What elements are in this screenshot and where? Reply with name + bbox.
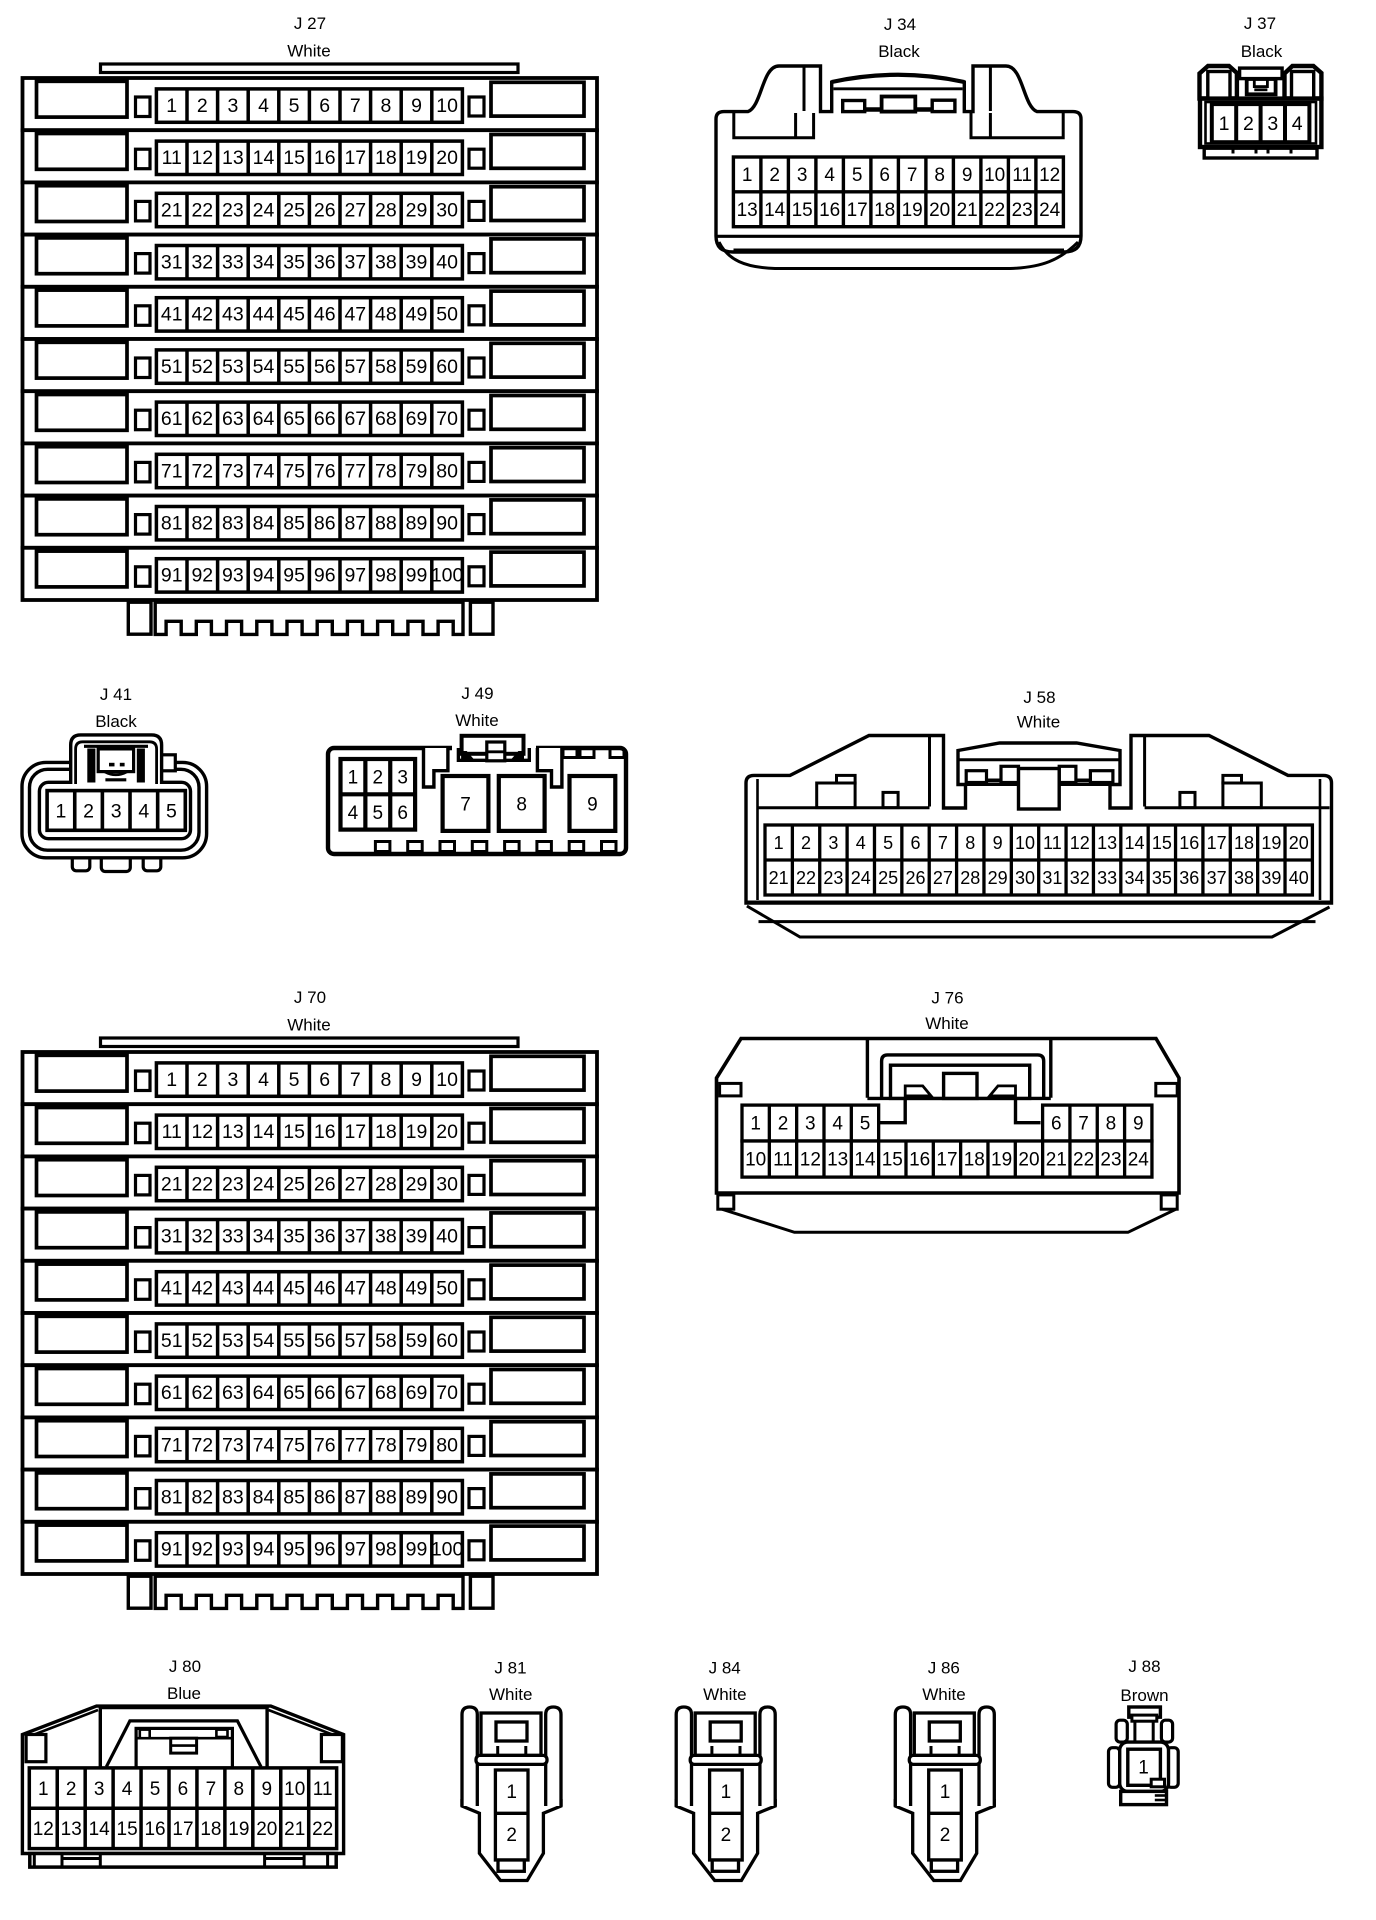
svg-text:67: 67 (344, 408, 366, 430)
svg-text:19: 19 (228, 1819, 249, 1840)
svg-text:15: 15 (283, 147, 305, 169)
svg-text:82: 82 (191, 513, 213, 535)
svg-text:21: 21 (769, 868, 789, 888)
svg-text:22: 22 (1073, 1150, 1094, 1171)
svg-text:27: 27 (344, 1173, 366, 1195)
svg-text:33: 33 (1097, 868, 1117, 888)
svg-text:12: 12 (191, 147, 213, 169)
svg-text:58: 58 (375, 1330, 397, 1352)
svg-text:23: 23 (823, 868, 843, 888)
svg-text:92: 92 (191, 565, 213, 587)
svg-text:26: 26 (314, 1173, 336, 1195)
svg-text:59: 59 (406, 356, 428, 378)
svg-text:71: 71 (161, 460, 183, 482)
svg-text:29: 29 (988, 868, 1008, 888)
svg-text:80: 80 (436, 460, 458, 482)
svg-text:16: 16 (1179, 833, 1199, 853)
svg-text:2: 2 (197, 95, 208, 117)
svg-text:26: 26 (314, 199, 336, 221)
svg-text:6: 6 (319, 1069, 330, 1091)
svg-text:14: 14 (854, 1150, 876, 1171)
svg-text:72: 72 (191, 460, 213, 482)
svg-text:23: 23 (222, 1173, 244, 1195)
svg-text:16: 16 (314, 147, 336, 169)
svg-text:8: 8 (234, 1779, 245, 1800)
svg-text:5: 5 (852, 165, 863, 186)
svg-text:17: 17 (344, 1121, 366, 1143)
svg-text:1: 1 (742, 165, 753, 186)
svg-text:10: 10 (436, 95, 458, 117)
svg-text:20: 20 (256, 1819, 277, 1840)
svg-text:1: 1 (1219, 113, 1230, 135)
svg-text:78: 78 (375, 460, 397, 482)
svg-text:50: 50 (436, 304, 458, 326)
svg-text:85: 85 (283, 513, 305, 535)
svg-text:73: 73 (222, 460, 244, 482)
svg-text:3: 3 (1267, 113, 1278, 135)
svg-text:22: 22 (796, 868, 816, 888)
svg-text:23: 23 (1100, 1150, 1121, 1171)
svg-text:63: 63 (222, 1382, 244, 1404)
svg-text:3: 3 (94, 1779, 105, 1800)
svg-text:15: 15 (882, 1150, 903, 1171)
svg-text:5: 5 (883, 833, 893, 853)
svg-text:Black: Black (1241, 42, 1283, 61)
svg-text:2: 2 (66, 1779, 77, 1800)
svg-text:49: 49 (406, 304, 428, 326)
svg-text:6: 6 (879, 165, 890, 186)
svg-text:3: 3 (227, 95, 238, 117)
svg-text:11: 11 (773, 1150, 793, 1171)
svg-text:24: 24 (1039, 200, 1061, 221)
svg-text:45: 45 (283, 304, 305, 326)
svg-text:2: 2 (373, 767, 384, 788)
svg-text:30: 30 (436, 1173, 458, 1195)
svg-text:4: 4 (348, 803, 359, 824)
svg-text:50: 50 (436, 1278, 458, 1300)
svg-text:35: 35 (283, 1226, 305, 1248)
svg-text:48: 48 (375, 1278, 397, 1300)
svg-text:99: 99 (406, 565, 428, 587)
svg-text:2: 2 (197, 1069, 208, 1091)
svg-text:14: 14 (764, 200, 786, 221)
svg-text:1: 1 (1138, 1758, 1149, 1779)
svg-text:43: 43 (222, 304, 244, 326)
svg-text:3: 3 (111, 800, 122, 822)
svg-text:8: 8 (380, 1069, 391, 1091)
svg-text:56: 56 (314, 356, 336, 378)
svg-text:20: 20 (1018, 1150, 1039, 1171)
svg-text:57: 57 (344, 356, 366, 378)
svg-text:79: 79 (406, 1434, 428, 1456)
svg-text:21: 21 (161, 199, 183, 221)
svg-text:19: 19 (1261, 833, 1281, 853)
svg-text:9: 9 (587, 795, 598, 816)
svg-text:7: 7 (1078, 1114, 1089, 1135)
svg-text:5: 5 (289, 1069, 300, 1091)
svg-text:83: 83 (222, 513, 244, 535)
svg-text:15: 15 (1152, 833, 1172, 853)
svg-text:41: 41 (161, 304, 183, 326)
svg-text:97: 97 (344, 1539, 366, 1561)
svg-text:92: 92 (191, 1539, 213, 1561)
svg-text:69: 69 (406, 1382, 428, 1404)
svg-text:20: 20 (1289, 833, 1309, 853)
svg-text:13: 13 (827, 1150, 848, 1171)
svg-text:68: 68 (375, 408, 397, 430)
svg-text:8: 8 (516, 795, 527, 816)
svg-text:72: 72 (191, 1434, 213, 1456)
svg-text:13: 13 (222, 1121, 244, 1143)
svg-text:Blue: Blue (167, 1684, 201, 1703)
svg-text:31: 31 (161, 252, 183, 274)
svg-text:12: 12 (33, 1819, 54, 1840)
svg-text:1: 1 (774, 833, 784, 853)
svg-text:12: 12 (1070, 833, 1090, 853)
svg-text:18: 18 (874, 200, 895, 221)
svg-text:80: 80 (436, 1434, 458, 1456)
svg-text:85: 85 (283, 1487, 305, 1509)
svg-text:94: 94 (253, 565, 275, 587)
svg-text:17: 17 (847, 200, 868, 221)
svg-text:4: 4 (258, 95, 269, 117)
svg-text:6: 6 (397, 803, 408, 824)
svg-text:24: 24 (253, 199, 275, 221)
svg-text:97: 97 (344, 565, 366, 587)
svg-text:96: 96 (314, 1539, 336, 1561)
svg-text:79: 79 (406, 460, 428, 482)
svg-text:J 41: J 41 (100, 685, 132, 704)
svg-text:12: 12 (800, 1150, 821, 1171)
svg-text:2: 2 (778, 1114, 789, 1135)
svg-text:90: 90 (436, 1487, 458, 1509)
svg-text:3: 3 (805, 1114, 816, 1135)
svg-text:15: 15 (283, 1121, 305, 1143)
svg-text:2: 2 (83, 800, 94, 822)
svg-text:84: 84 (253, 1487, 275, 1509)
svg-text:95: 95 (283, 1539, 305, 1561)
svg-text:16: 16 (144, 1819, 165, 1840)
svg-text:16: 16 (819, 200, 840, 221)
svg-text:89: 89 (406, 1487, 428, 1509)
svg-text:4: 4 (832, 1114, 843, 1135)
svg-text:10: 10 (984, 165, 1005, 186)
svg-text:5: 5 (860, 1114, 871, 1135)
svg-text:J 58: J 58 (1023, 688, 1055, 707)
svg-text:13: 13 (737, 200, 758, 221)
svg-text:62: 62 (191, 408, 213, 430)
svg-text:17: 17 (172, 1819, 193, 1840)
svg-text:81: 81 (161, 1487, 183, 1509)
svg-text:34: 34 (253, 252, 275, 274)
svg-text:36: 36 (314, 1226, 336, 1248)
svg-text:100: 100 (431, 565, 464, 587)
svg-text:10: 10 (284, 1779, 305, 1800)
svg-text:52: 52 (191, 1330, 213, 1352)
svg-text:24: 24 (851, 868, 871, 888)
svg-text:20: 20 (929, 200, 950, 221)
svg-text:30: 30 (1015, 868, 1035, 888)
svg-text:8: 8 (1106, 1114, 1117, 1135)
svg-text:2: 2 (801, 833, 811, 853)
svg-text:38: 38 (375, 252, 397, 274)
svg-text:J 70: J 70 (294, 988, 326, 1007)
svg-text:32: 32 (1070, 868, 1090, 888)
svg-text:1: 1 (348, 767, 359, 788)
svg-text:25: 25 (283, 1173, 305, 1195)
svg-text:93: 93 (222, 1539, 244, 1561)
svg-text:59: 59 (406, 1330, 428, 1352)
svg-text:14: 14 (1124, 833, 1144, 853)
svg-text:75: 75 (283, 1434, 305, 1456)
svg-text:64: 64 (253, 1382, 275, 1404)
svg-text:86: 86 (314, 1487, 336, 1509)
svg-text:21: 21 (957, 200, 978, 221)
svg-text:41: 41 (161, 1278, 183, 1300)
svg-text:5: 5 (373, 803, 384, 824)
svg-text:22: 22 (191, 1173, 213, 1195)
svg-text:8: 8 (380, 95, 391, 117)
svg-text:51: 51 (161, 1330, 183, 1352)
svg-text:10: 10 (1015, 833, 1035, 853)
svg-text:1: 1 (38, 1779, 49, 1800)
svg-text:White: White (922, 1685, 965, 1704)
svg-text:71: 71 (161, 1434, 183, 1456)
svg-text:70: 70 (436, 1382, 458, 1404)
svg-text:29: 29 (406, 1173, 428, 1195)
svg-text:68: 68 (375, 1382, 397, 1404)
svg-text:9: 9 (411, 1069, 422, 1091)
svg-text:96: 96 (314, 565, 336, 587)
svg-text:2: 2 (506, 1825, 517, 1846)
svg-text:14: 14 (253, 1121, 275, 1143)
svg-text:87: 87 (344, 1487, 366, 1509)
svg-text:94: 94 (253, 1539, 275, 1561)
svg-text:14: 14 (89, 1819, 111, 1840)
svg-text:84: 84 (253, 513, 275, 535)
svg-text:1: 1 (506, 1782, 517, 1803)
svg-text:13: 13 (61, 1819, 82, 1840)
svg-text:11: 11 (1043, 833, 1062, 853)
svg-text:J 49: J 49 (461, 684, 493, 703)
svg-text:13: 13 (222, 147, 244, 169)
svg-text:10: 10 (745, 1150, 766, 1171)
svg-text:White: White (925, 1014, 968, 1033)
svg-text:27: 27 (933, 868, 953, 888)
svg-text:60: 60 (436, 356, 458, 378)
svg-text:7: 7 (938, 833, 948, 853)
svg-text:2: 2 (721, 1825, 732, 1846)
svg-text:9: 9 (962, 165, 973, 186)
svg-text:White: White (703, 1685, 746, 1704)
svg-text:Brown: Brown (1120, 1686, 1168, 1705)
svg-text:11: 11 (313, 1779, 333, 1800)
svg-text:10: 10 (436, 1069, 458, 1091)
svg-text:White: White (489, 1685, 532, 1704)
svg-text:18: 18 (964, 1150, 985, 1171)
svg-text:8: 8 (934, 165, 945, 186)
svg-text:1: 1 (166, 95, 177, 117)
svg-text:99: 99 (406, 1539, 428, 1561)
svg-text:48: 48 (375, 304, 397, 326)
svg-text:19: 19 (902, 200, 923, 221)
svg-text:24: 24 (253, 1173, 275, 1195)
svg-text:74: 74 (253, 460, 275, 482)
svg-text:17: 17 (936, 1150, 957, 1171)
svg-text:J 34: J 34 (884, 15, 916, 34)
svg-text:6: 6 (319, 95, 330, 117)
svg-text:1: 1 (166, 1069, 177, 1091)
svg-text:46: 46 (314, 1278, 336, 1300)
svg-text:67: 67 (344, 1382, 366, 1404)
svg-text:53: 53 (222, 356, 244, 378)
svg-text:61: 61 (161, 1382, 183, 1404)
svg-text:J 76: J 76 (931, 989, 963, 1008)
svg-text:11: 11 (162, 1121, 182, 1143)
svg-text:35: 35 (283, 252, 305, 274)
svg-text:40: 40 (1289, 868, 1309, 888)
svg-text:55: 55 (283, 356, 305, 378)
svg-text:66: 66 (314, 1382, 336, 1404)
svg-text:23: 23 (1012, 200, 1033, 221)
svg-text:47: 47 (344, 1278, 366, 1300)
svg-text:22: 22 (191, 199, 213, 221)
svg-text:38: 38 (1234, 868, 1254, 888)
svg-text:45: 45 (283, 1278, 305, 1300)
svg-text:25: 25 (878, 868, 898, 888)
svg-text:19: 19 (991, 1150, 1012, 1171)
svg-text:27: 27 (344, 199, 366, 221)
svg-text:21: 21 (284, 1819, 305, 1840)
svg-text:65: 65 (283, 408, 305, 430)
svg-text:69: 69 (406, 408, 428, 430)
svg-text:88: 88 (375, 513, 397, 535)
svg-text:9: 9 (411, 95, 422, 117)
svg-text:93: 93 (222, 565, 244, 587)
svg-text:63: 63 (222, 408, 244, 430)
svg-text:31: 31 (161, 1226, 183, 1248)
svg-text:88: 88 (375, 1487, 397, 1509)
svg-text:J 86: J 86 (928, 1659, 960, 1678)
svg-text:36: 36 (1179, 868, 1199, 888)
svg-text:5: 5 (289, 95, 300, 117)
svg-text:37: 37 (1207, 868, 1227, 888)
svg-text:White: White (455, 711, 498, 730)
svg-text:39: 39 (406, 252, 428, 274)
svg-text:58: 58 (375, 356, 397, 378)
svg-text:78: 78 (375, 1434, 397, 1456)
svg-text:22: 22 (984, 200, 1005, 221)
svg-text:90: 90 (436, 513, 458, 535)
svg-text:2: 2 (940, 1825, 951, 1846)
svg-text:7: 7 (206, 1779, 217, 1800)
svg-text:Black: Black (95, 712, 137, 731)
svg-text:44: 44 (253, 1278, 275, 1300)
svg-text:66: 66 (314, 408, 336, 430)
svg-text:76: 76 (314, 1434, 336, 1456)
svg-text:87: 87 (344, 513, 366, 535)
svg-text:J 84: J 84 (709, 1659, 741, 1678)
svg-text:57: 57 (344, 1330, 366, 1352)
svg-text:22: 22 (312, 1819, 333, 1840)
svg-text:32: 32 (191, 252, 213, 274)
svg-text:4: 4 (258, 1069, 269, 1091)
svg-text:White: White (287, 42, 330, 61)
svg-text:26: 26 (906, 868, 926, 888)
svg-text:8: 8 (965, 833, 975, 853)
svg-text:47: 47 (344, 304, 366, 326)
svg-text:98: 98 (375, 1539, 397, 1561)
svg-text:21: 21 (1046, 1150, 1067, 1171)
svg-text:Black: Black (878, 42, 920, 61)
svg-text:62: 62 (191, 1382, 213, 1404)
svg-text:43: 43 (222, 1278, 244, 1300)
svg-text:J 27: J 27 (294, 14, 326, 33)
svg-text:9: 9 (262, 1779, 273, 1800)
svg-text:19: 19 (406, 1121, 428, 1143)
svg-text:3: 3 (227, 1069, 238, 1091)
svg-text:33: 33 (222, 1226, 244, 1248)
svg-text:23: 23 (222, 199, 244, 221)
svg-text:11: 11 (1012, 165, 1032, 186)
svg-text:34: 34 (1124, 868, 1144, 888)
svg-text:38: 38 (375, 1226, 397, 1248)
svg-text:56: 56 (314, 1330, 336, 1352)
svg-text:18: 18 (375, 147, 397, 169)
svg-text:6: 6 (911, 833, 921, 853)
svg-text:6: 6 (178, 1779, 189, 1800)
svg-text:28: 28 (375, 1173, 397, 1195)
svg-text:36: 36 (314, 252, 336, 274)
svg-text:83: 83 (222, 1487, 244, 1509)
svg-text:70: 70 (436, 408, 458, 430)
svg-text:39: 39 (406, 1226, 428, 1248)
svg-text:37: 37 (344, 1226, 366, 1248)
svg-text:17: 17 (1207, 833, 1227, 853)
svg-text:J 37: J 37 (1244, 14, 1276, 33)
svg-text:9: 9 (1133, 1114, 1144, 1135)
svg-text:31: 31 (1042, 868, 1062, 888)
svg-text:White: White (287, 1016, 330, 1035)
svg-text:74: 74 (253, 1434, 275, 1456)
svg-text:42: 42 (191, 304, 213, 326)
svg-text:55: 55 (283, 1330, 305, 1352)
svg-text:14: 14 (253, 147, 275, 169)
svg-text:34: 34 (253, 1226, 275, 1248)
svg-text:5: 5 (150, 1779, 161, 1800)
svg-text:37: 37 (344, 252, 366, 274)
svg-text:33: 33 (222, 252, 244, 274)
svg-text:76: 76 (314, 460, 336, 482)
svg-text:4: 4 (1292, 113, 1303, 135)
svg-text:2: 2 (769, 165, 780, 186)
svg-text:6: 6 (1051, 1114, 1062, 1135)
svg-text:J 88: J 88 (1128, 1657, 1160, 1676)
svg-text:44: 44 (253, 304, 275, 326)
svg-text:1: 1 (721, 1782, 732, 1803)
svg-text:J 80: J 80 (169, 1657, 201, 1676)
svg-text:61: 61 (161, 408, 183, 430)
svg-text:30: 30 (436, 199, 458, 221)
svg-text:9: 9 (993, 833, 1003, 853)
svg-text:2: 2 (1243, 113, 1254, 135)
svg-text:16: 16 (314, 1121, 336, 1143)
svg-text:18: 18 (1234, 833, 1254, 853)
svg-text:4: 4 (856, 833, 866, 853)
svg-text:53: 53 (222, 1330, 244, 1352)
svg-text:51: 51 (161, 356, 183, 378)
svg-text:40: 40 (436, 1226, 458, 1248)
